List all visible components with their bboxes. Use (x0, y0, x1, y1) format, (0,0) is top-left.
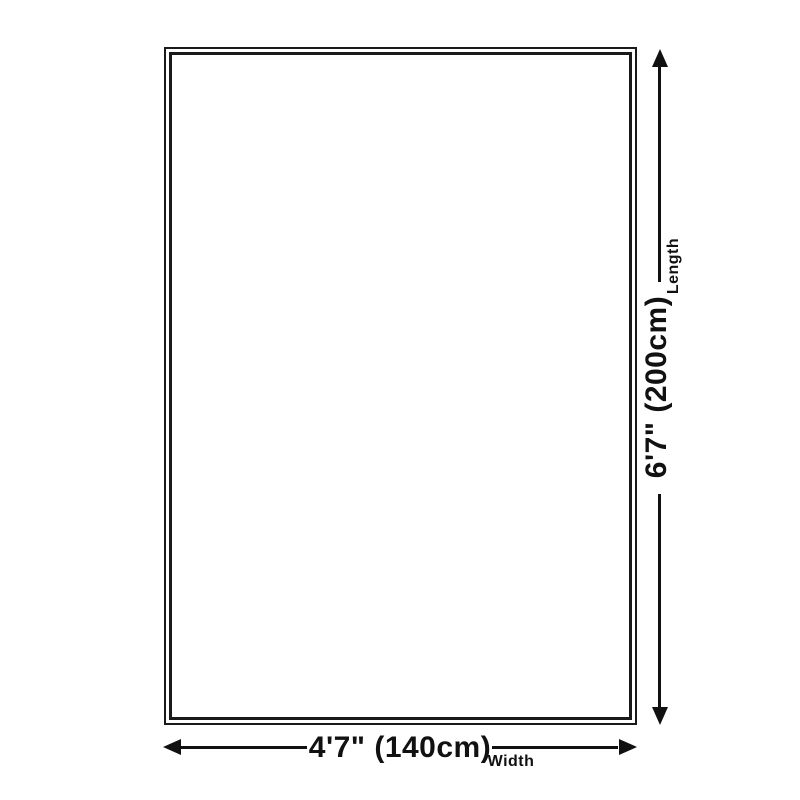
width-line-right-segment (492, 746, 618, 749)
length-label: Length (665, 238, 683, 294)
width-label: Width (488, 753, 535, 771)
rug-inner-border (169, 52, 632, 720)
rug-outline (164, 47, 637, 725)
width-value: 4'7" (140cm) (309, 731, 491, 765)
length-value: 6'7" (200cm) (640, 296, 674, 478)
width-line-left-segment (179, 746, 307, 749)
arrow-right-icon (619, 739, 637, 755)
length-line-top-segment (658, 62, 661, 282)
dimension-diagram: 6'7" (200cm) Length 4'7" (140cm) Width (0, 0, 800, 800)
arrow-down-icon (652, 707, 668, 725)
length-line-bottom-segment (658, 494, 661, 711)
